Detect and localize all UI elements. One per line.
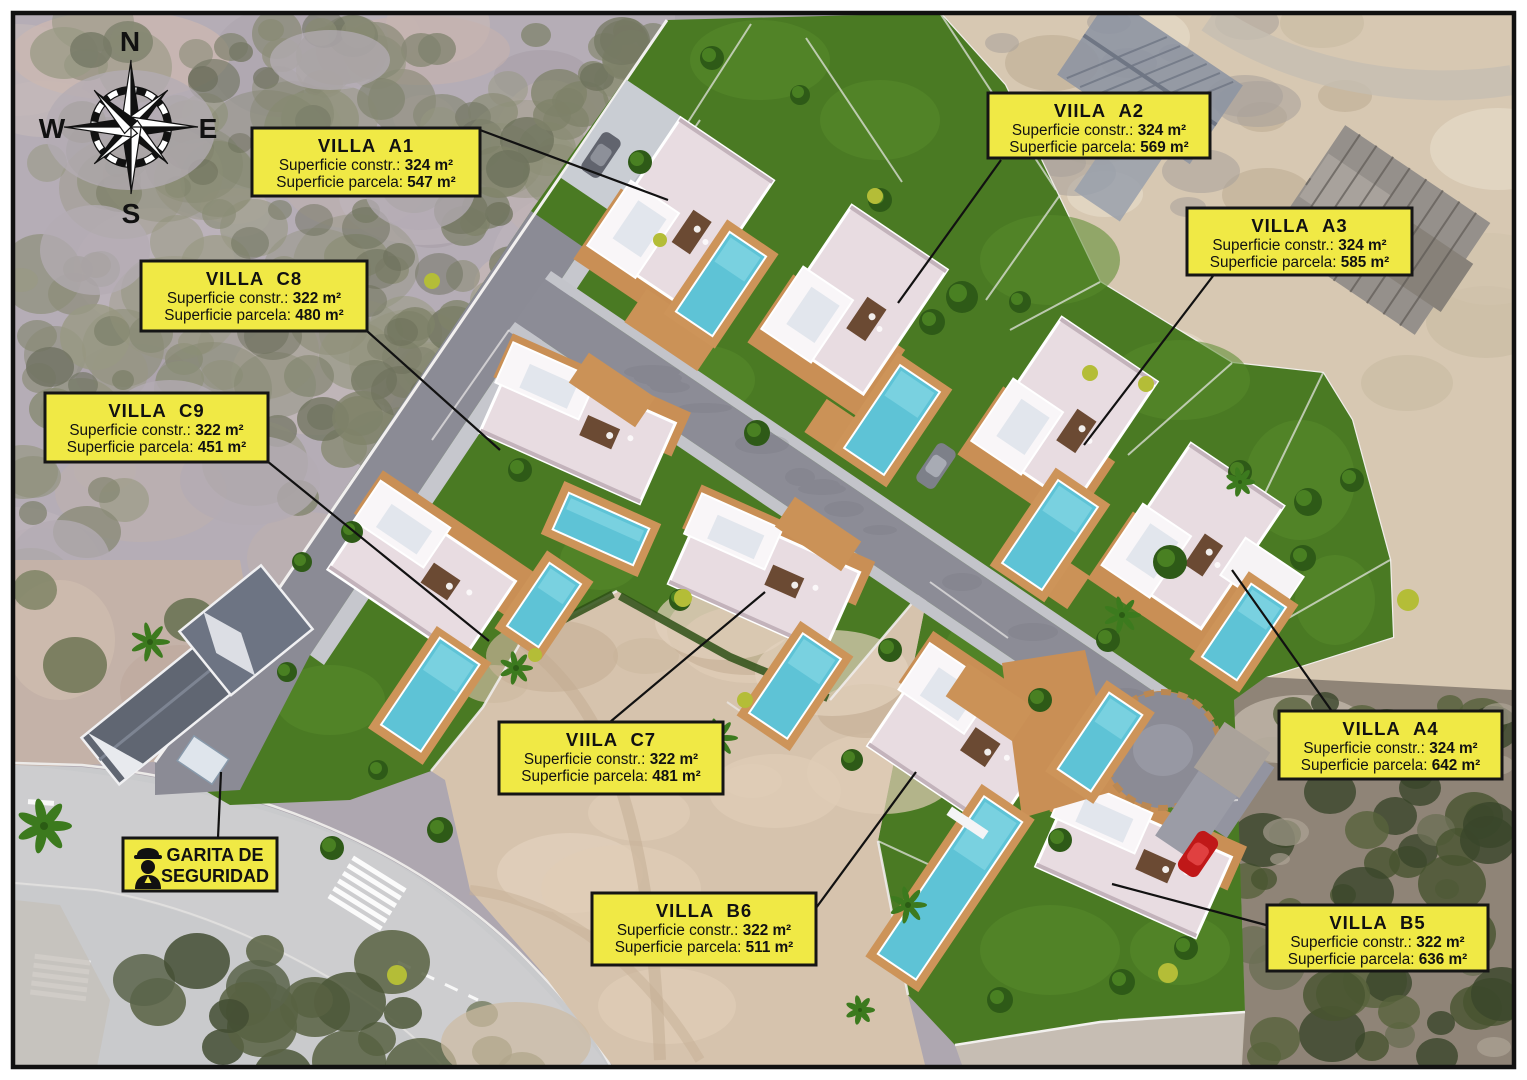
svg-text:W: W — [39, 113, 66, 144]
svg-text:VIILA A2: VIILA A2 — [1054, 100, 1144, 121]
svg-text:Superficie parcela: 642 m²: Superficie parcela: 642 m² — [1301, 757, 1480, 774]
svg-text:Superficie constr.: 324 m²: Superficie constr.: 324 m² — [1212, 237, 1386, 254]
svg-text:Superficie parcela: 547 m²: Superficie parcela: 547 m² — [276, 174, 455, 191]
svg-text:VILLA C9: VILLA C9 — [108, 400, 204, 421]
svg-text:S: S — [122, 198, 141, 229]
svg-text:VILLA B6: VILLA B6 — [656, 900, 752, 921]
svg-text:Superficie parcela: 480 m²: Superficie parcela: 480 m² — [164, 307, 343, 324]
svg-text:E: E — [199, 113, 218, 144]
svg-text:Superficie parcela: 569 m²: Superficie parcela: 569 m² — [1009, 139, 1188, 156]
svg-text:SEGURIDAD: SEGURIDAD — [161, 866, 269, 886]
svg-text:GARITA DE: GARITA DE — [167, 845, 264, 865]
svg-text:VILLA C8: VILLA C8 — [206, 268, 302, 289]
svg-text:VILLA B5: VILLA B5 — [1329, 912, 1425, 933]
svg-text:VILLA A1: VILLA A1 — [318, 135, 414, 156]
svg-text:Superficie constr.: 322 m²: Superficie constr.: 322 m² — [617, 922, 791, 939]
svg-text:Superficie parcela: 636 m²: Superficie parcela: 636 m² — [1288, 951, 1467, 968]
svg-text:VIILA C7: VIILA C7 — [566, 729, 656, 750]
svg-text:Superficie constr.: 324 m²: Superficie constr.: 324 m² — [279, 157, 453, 174]
svg-text:Superficie parcela: 451 m²: Superficie parcela: 451 m² — [67, 439, 246, 456]
svg-text:Superficie parcela: 585 m²: Superficie parcela: 585 m² — [1210, 254, 1389, 271]
svg-text:VILLA A3: VILLA A3 — [1251, 215, 1347, 236]
svg-text:Superficie constr.: 324 m²: Superficie constr.: 324 m² — [1012, 122, 1186, 139]
svg-text:Superficie constr.: 322 m²: Superficie constr.: 322 m² — [69, 422, 243, 439]
svg-text:Superficie parcela: 481 m²: Superficie parcela: 481 m² — [521, 768, 700, 785]
svg-text:Superficie constr.: 324 m²: Superficie constr.: 324 m² — [1303, 740, 1477, 757]
svg-text:Superficie constr.: 322 m²: Superficie constr.: 322 m² — [167, 290, 341, 307]
svg-text:Superficie constr.: 322 m²: Superficie constr.: 322 m² — [524, 751, 698, 768]
svg-text:Superficie constr.: 322 m²: Superficie constr.: 322 m² — [1290, 934, 1464, 951]
svg-text:VILLA A4: VILLA A4 — [1342, 718, 1438, 739]
svg-text:N: N — [120, 26, 140, 57]
svg-text:Superficie parcela: 511 m²: Superficie parcela: 511 m² — [615, 939, 794, 956]
